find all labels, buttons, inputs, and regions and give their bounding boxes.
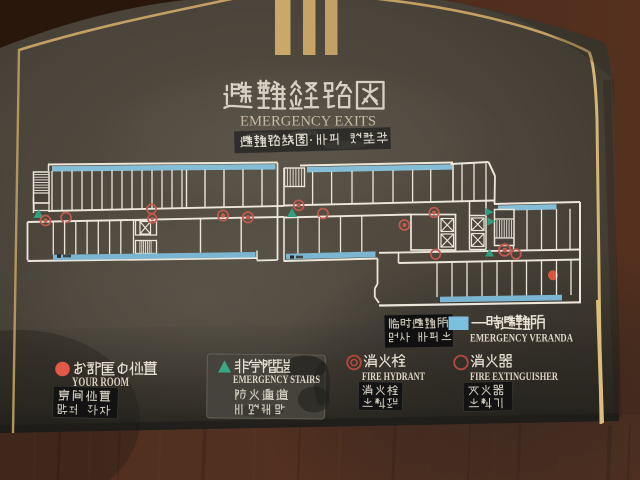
svg-text:FIRE EXTINGUISHER: FIRE EXTINGUISHER: [470, 371, 559, 383]
svg-text:EMERGENCY VERANDA: EMERGENCY VERANDA: [470, 333, 574, 345]
svg-text:FIRE HYDRANT: FIRE HYDRANT: [362, 371, 425, 383]
svg-text:EMERGENCY EXITS: EMERGENCY EXITS: [240, 114, 376, 130]
svg-text:EMERGENCY STAIRS: EMERGENCY STAIRS: [233, 374, 320, 386]
